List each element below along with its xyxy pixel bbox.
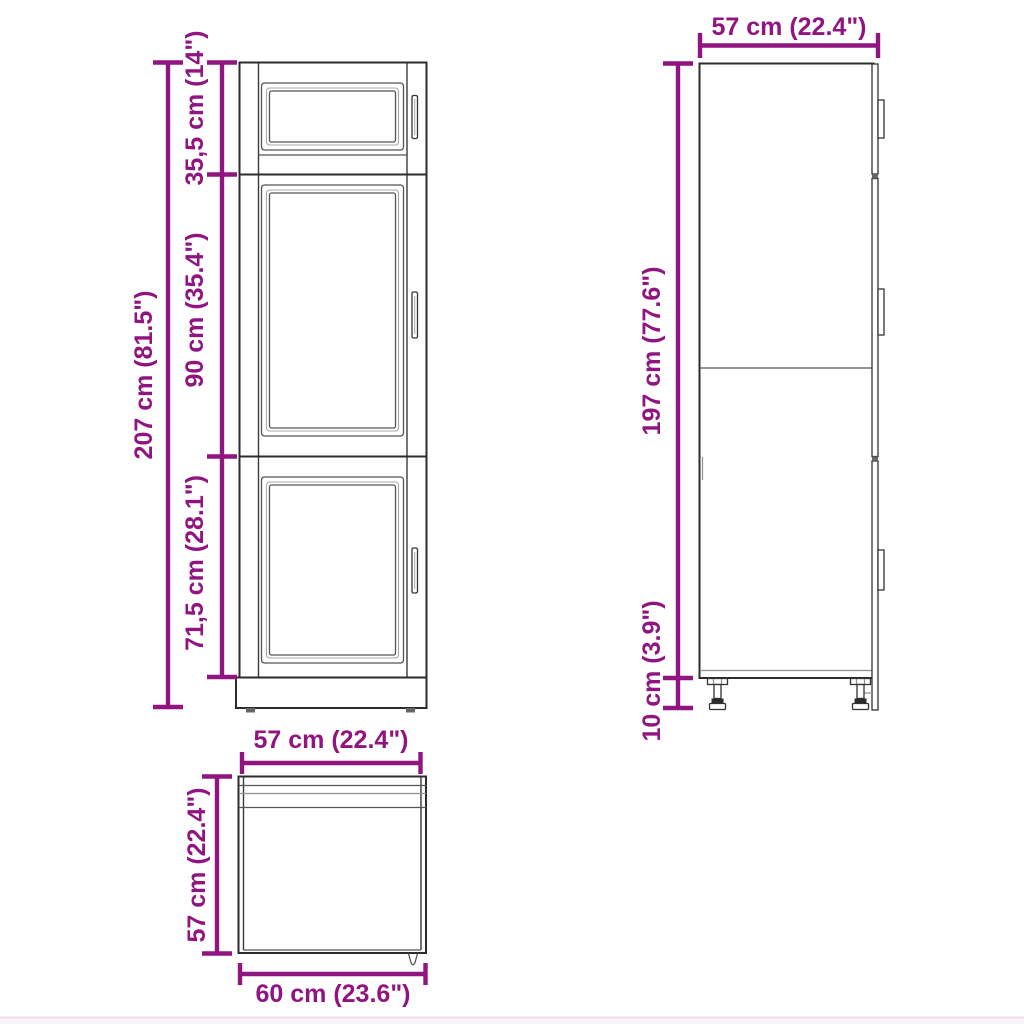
- diagram-canvas: 207 cm (81.5") 35,5 cm (14") 90 cm (35.4…: [0, 0, 1024, 1024]
- front-total-height-dimension: 207 cm (81.5"): [130, 63, 183, 708]
- front-bottom-door-handle: [412, 548, 418, 593]
- top-overall-width-dimension: 60 cm (23.6"): [240, 963, 426, 1008]
- front-top-door-handle: [412, 96, 418, 139]
- top-view-foot-hook: [409, 954, 418, 965]
- side-middle-handle: [878, 289, 884, 335]
- front-section-dimensions: 35,5 cm (14") 90 cm (35.4") 71,5 cm (28.…: [181, 31, 237, 678]
- side-door-gap-top: [872, 174, 878, 179]
- top-overall-width-label: 60 cm (23.6"): [256, 980, 411, 1008]
- dimension-diagram: 207 cm (81.5") 35,5 cm (14") 90 cm (35.4…: [0, 0, 1024, 1024]
- page-edge-strip: [0, 1019, 1024, 1024]
- side-cabinet-body: [700, 64, 874, 679]
- front-top-section-label: 35,5 cm (14"): [181, 31, 209, 186]
- front-middle-door: [262, 185, 418, 436]
- side-door-gap-bottom: [872, 457, 878, 462]
- front-foot-right: [406, 708, 415, 713]
- top-depth-dimension: 57 cm (22.4"): [183, 777, 232, 954]
- side-depth-label: 57 cm (22.4"): [712, 13, 867, 41]
- side-door-edge: [872, 64, 878, 710]
- side-top-handle: [878, 100, 884, 138]
- front-foot-left: [246, 708, 255, 713]
- front-middle-door-handle: [412, 292, 418, 338]
- top-view: [239, 777, 427, 965]
- front-middle-section-label: 90 cm (35.4"): [181, 233, 209, 388]
- front-bottom-door: [262, 477, 418, 663]
- side-foot-right: [851, 679, 871, 710]
- front-total-height-label: 207 cm (81.5"): [130, 291, 158, 460]
- top-width-dimension: 57 cm (22.4"): [242, 726, 421, 774]
- front-plinth: [236, 678, 427, 709]
- side-body-height-label: 197 cm (77.6"): [638, 267, 666, 436]
- side-view: [700, 64, 885, 711]
- front-top-door: [262, 83, 418, 150]
- side-bottom-handle: [878, 550, 884, 590]
- front-view: [236, 63, 427, 713]
- side-feet-height-label: 10 cm (3.9"): [638, 600, 666, 741]
- side-foot-left: [708, 679, 728, 710]
- top-side-depth-label: 57 cm (22.4"): [183, 788, 211, 943]
- top-view-outline: [239, 777, 427, 954]
- side-depth-dimension: 57 cm (22.4"): [700, 13, 878, 58]
- front-bottom-section-label: 71,5 cm (28.1"): [181, 475, 209, 651]
- side-height-dimension: 197 cm (77.6") 10 cm (3.9"): [638, 64, 693, 742]
- top-body-width-label: 57 cm (22.4"): [254, 726, 409, 754]
